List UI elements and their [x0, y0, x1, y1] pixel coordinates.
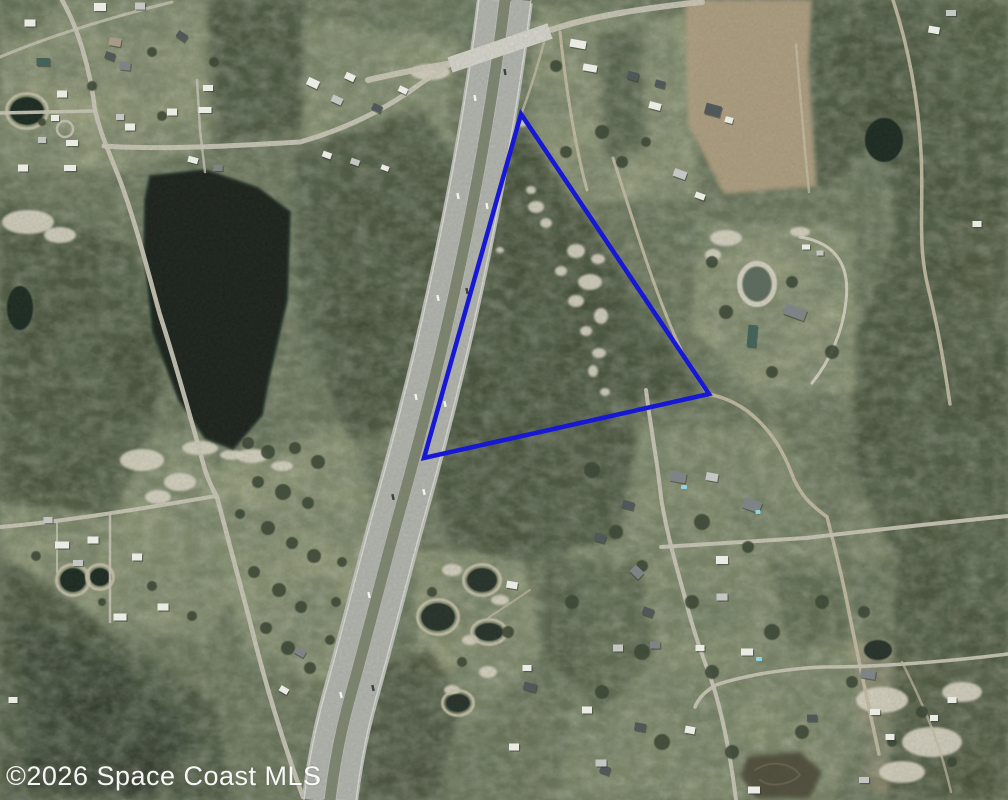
building [817, 251, 824, 256]
building [114, 614, 127, 621]
building [94, 3, 106, 11]
building [696, 645, 705, 651]
building [859, 777, 869, 783]
building [613, 645, 623, 652]
building [57, 91, 67, 98]
building [73, 560, 83, 566]
building [948, 697, 957, 703]
building [886, 734, 895, 740]
building [930, 715, 938, 721]
building [802, 245, 810, 250]
pool [756, 657, 762, 661]
building [203, 85, 213, 91]
building [119, 62, 131, 71]
building [596, 760, 607, 767]
building [523, 665, 532, 671]
building [18, 165, 28, 172]
building [44, 517, 53, 523]
building [37, 58, 50, 66]
building [158, 604, 169, 611]
building [55, 542, 69, 549]
building [650, 642, 660, 649]
building [214, 165, 223, 171]
building [582, 707, 592, 714]
building [135, 3, 145, 10]
building [132, 554, 142, 561]
building [167, 109, 177, 116]
building [946, 10, 956, 16]
building [116, 114, 124, 120]
pool [681, 485, 687, 489]
building [25, 20, 36, 27]
building [748, 787, 760, 794]
building [125, 124, 135, 131]
speckle-texture [0, 0, 1008, 800]
building [88, 537, 99, 544]
building [51, 115, 59, 121]
aerial-map: ©2026 Space Coast MLS [0, 0, 1008, 800]
building [973, 221, 982, 227]
building [66, 140, 78, 146]
building [64, 165, 76, 171]
building [747, 325, 758, 348]
watermark: ©2026 Space Coast MLS [6, 761, 322, 792]
building [9, 697, 18, 703]
satellite-canvas [0, 0, 1008, 800]
building [807, 715, 817, 722]
building [509, 744, 519, 751]
building [199, 107, 212, 113]
building [717, 594, 728, 601]
pool [756, 510, 761, 514]
building [741, 649, 753, 656]
building [716, 556, 728, 564]
building [870, 709, 880, 715]
building [38, 137, 46, 143]
